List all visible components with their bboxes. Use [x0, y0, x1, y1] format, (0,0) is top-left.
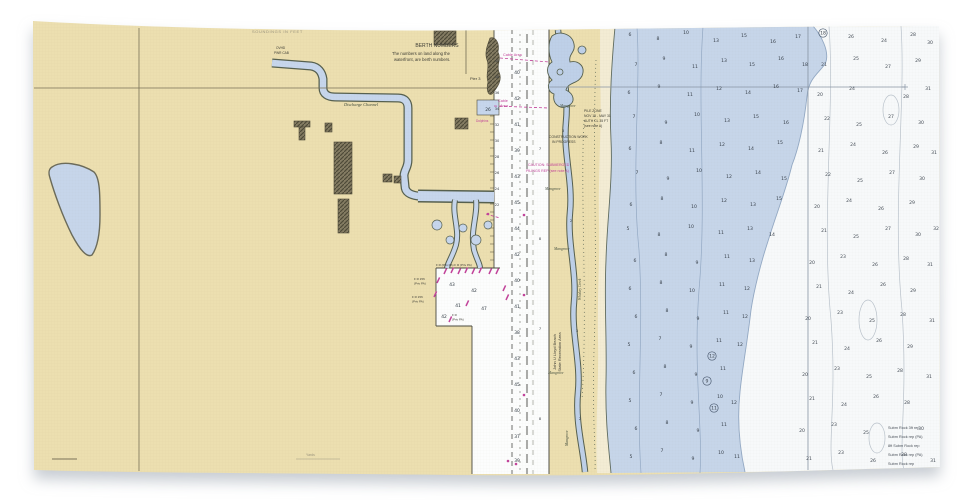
pier-label-top: Pier 2	[459, 15, 470, 20]
product-photo: SOUNDINGS IN FEET BERTH NUMBERS The numb…	[0, 0, 967, 500]
nautical-chart-towel: SOUNDINGS IN FEET BERTH NUMBERS The numb…	[0, 0, 967, 500]
towel-weave-texture	[30, 18, 945, 478]
